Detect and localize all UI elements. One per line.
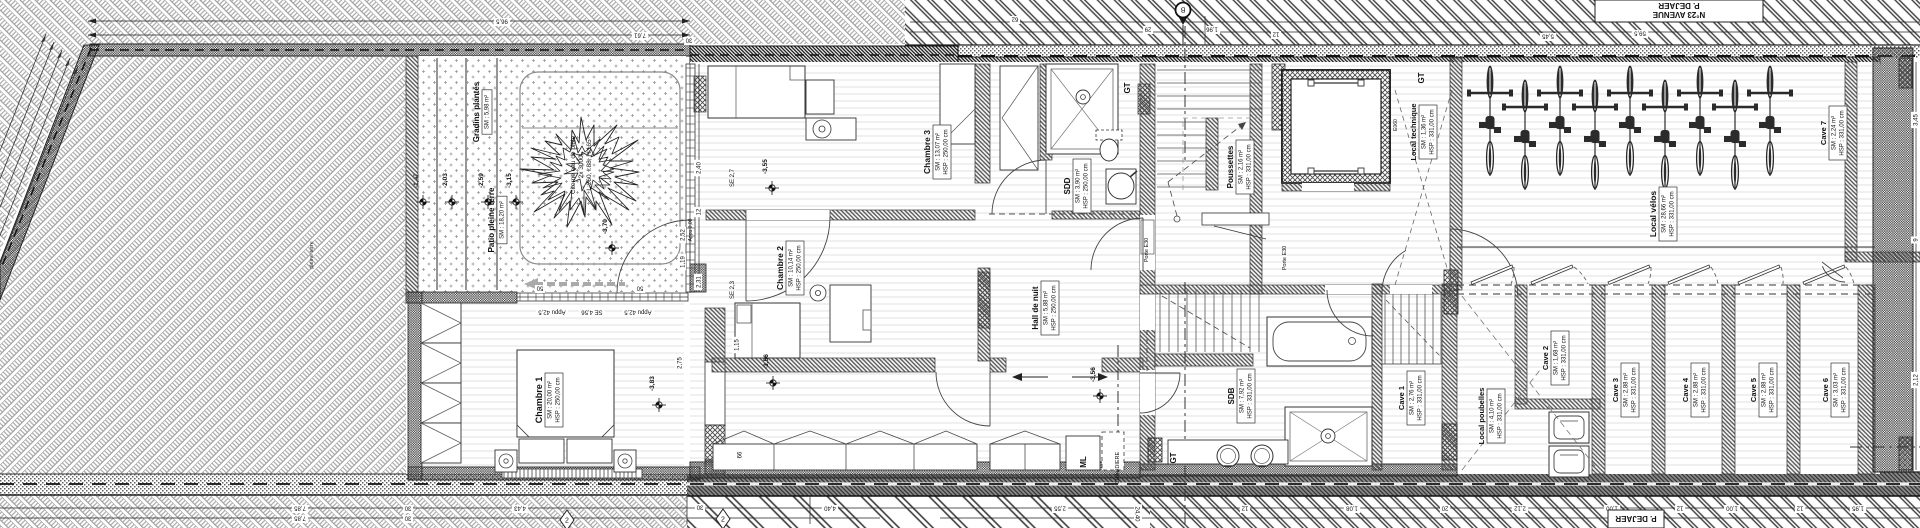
svg-text:Appu 42,5: Appu 42,5 [538,309,566,315]
svg-text:Appu 0,00: Appu 0,00 [688,218,694,241]
svg-text:SM : 3,90 m²: SM : 3,90 m² [1076,169,1082,203]
svg-text:SE 4,56: SE 4,56 [581,309,603,315]
svg-text:Cave 2: Cave 2 [1541,346,1550,370]
svg-text:2,52: 2,52 [681,229,687,241]
svg-text:N°23 AVENUE: N°23 AVENUE [1652,10,1705,19]
svg-text:SM : 4,10 m²: SM : 4,10 m² [1490,399,1496,433]
svg-text:Chambre 3: Chambre 3 [922,130,932,174]
svg-text:-2,03: -2,03 [442,173,449,188]
svg-text:Poussettes: Poussettes [1226,145,1235,188]
svg-text:7,85: 7,85 [294,515,306,521]
svg-text:Gradins plantés: Gradins plantés [472,81,481,142]
svg-text:B: B [1180,6,1185,13]
svg-text:24,40: 24,40 [1134,506,1140,522]
svg-text:62: 62 [1011,16,1018,22]
svg-text:1,96: 1,96 [1206,26,1218,32]
svg-text:-3,56: -3,56 [1090,367,1097,382]
svg-text:Porte E30: Porte E30 [1144,238,1150,262]
svg-text:HSP : 331,00 cm: HSP : 331,00 cm [1842,367,1848,412]
svg-text:12: 12 [1796,505,1803,511]
svg-text:-3,15: -3,15 [506,173,513,188]
svg-text:2: 2 [721,517,725,524]
svg-text:7,61: 7,61 [634,32,646,38]
svg-text:SM : 18,20 m²: SM : 18,20 m² [500,201,506,239]
svg-text:HSP : 331,00 cm: HSP : 331,00 cm [1418,375,1424,420]
svg-text:Local vélos: Local vélos [1648,191,1658,238]
svg-text:-2,59: -2,59 [478,173,485,188]
svg-text:HSP : 331,00 cm: HSP : 331,00 cm [1430,109,1436,154]
svg-text:HSP : 250,00 cm: HSP : 250,00 cm [556,377,562,422]
svg-text:7,85: 7,85 [294,505,306,511]
svg-text:HSP : 250,00 cm: HSP : 250,00 cm [944,129,950,174]
svg-text:SM : 1,36 m²: SM : 1,36 m² [1422,115,1428,149]
svg-text:Local technique: Local technique [1409,103,1418,160]
svg-text:30: 30 [696,504,703,510]
svg-text:SE 2,7: SE 2,7 [730,168,736,187]
svg-text:Hall de nuit: Hall de nuit [1031,286,1040,329]
svg-text:SM : 5,98 m²: SM : 5,98 m² [485,95,491,129]
svg-text:HSP : 250,00 cm: HSP : 250,00 cm [1084,163,1090,208]
svg-text:SM : 10,14 m²: SM : 10,14 m² [789,249,795,287]
svg-text:HSP : 331,00 cm: HSP : 331,00 cm [1702,367,1708,412]
svg-text:20: 20 [1441,505,1448,511]
svg-text:CHAUDIERE: CHAUDIERE [1115,451,1121,484]
svg-text:29: 29 [1144,26,1151,32]
svg-text:SM : 28,66 m²: SM : 28,66 m² [1662,195,1668,233]
svg-text:Cave 5: Cave 5 [1749,378,1758,402]
svg-text:Cave 4: Cave 4 [1681,377,1690,402]
svg-text:SM : 2,76 m²: SM : 2,76 m² [1410,381,1416,415]
svg-text:96,5: 96,5 [496,18,508,24]
svg-text:59,5: 59,5 [1634,30,1646,36]
svg-text:2,75: 2,75 [678,357,684,369]
svg-text:1,00: 1,00 [1726,505,1738,511]
svg-text:HSP : 331,00 cm: HSP : 331,00 cm [1670,191,1676,236]
svg-text:3,45: 3,45 [1914,114,1920,126]
svg-text:-3,56: -3,56 [763,354,770,369]
svg-text:L:260, l:88, H:165: L:260, l:88, H:165 [586,139,593,191]
svg-text:12: 12 [1241,505,1248,511]
svg-text:SM : 2,88 m²: SM : 2,88 m² [1624,373,1630,407]
svg-text:2,12: 2,12 [1514,505,1526,511]
svg-text:30: 30 [404,505,411,511]
svg-text:HSP : 250,00 cm: HSP : 250,00 cm [797,245,803,290]
svg-text:P. DEJAER: P. DEJAER [1615,514,1656,523]
svg-text:-3,70: -3,70 [602,219,609,234]
svg-text:2,12: 2,12 [1914,374,1920,386]
svg-text:HSP : 331,00 cm: HSP : 331,00 cm [1248,373,1254,418]
svg-text:50: 50 [636,285,643,291]
svg-text:4,40: 4,40 [824,505,836,511]
svg-text:30: 30 [404,515,411,521]
svg-text:HSP : 331,00 cm: HSP : 331,00 cm [1498,393,1504,438]
svg-text:2,40: 2,40 [697,162,703,174]
svg-text:Appu 42,5: Appu 42,5 [624,309,652,315]
svg-text:GT: GT [1123,82,1132,93]
svg-text:1,19: 1,19 [681,256,687,268]
svg-text:Cave 7: Cave 7 [1819,121,1828,145]
svg-text:Cave 6: Cave 6 [1821,378,1830,402]
svg-text:Cave 3: Cave 3 [1611,378,1620,402]
svg-text:P. DEJAER: P. DEJAER [1658,1,1699,10]
svg-text:12: 12 [1272,31,1279,37]
svg-text:Cave 1: Cave 1 [1397,386,1406,410]
svg-text:5,45: 5,45 [1542,33,1554,39]
svg-text:SM : 2,16 m²: SM : 2,16 m² [1239,150,1245,184]
svg-text:SE 2,3: SE 2,3 [730,280,736,299]
svg-text:SM : 2,24 m²: SM : 2,24 m² [1832,116,1838,150]
svg-text:1,95: 1,95 [1852,505,1864,511]
svg-text:SM : 13,07 m²: SM : 13,07 m² [936,133,942,171]
svg-text:GT: GT [1169,452,1178,463]
svg-text:Local poubelles: Local poubelles [1477,388,1486,445]
svg-text:12: 12 [697,208,703,215]
svg-text:-3,83: -3,83 [649,376,656,391]
svg-text:GT: GT [1417,72,1426,83]
svg-text:SM : 5,88 m²: SM : 5,88 m² [1044,291,1050,325]
svg-text:1,08: 1,08 [1346,505,1358,511]
svg-text:4,43: 4,43 [514,505,526,511]
svg-text:pleine terre: pleine terre [309,241,315,269]
svg-text:HSP : 331,00 cm: HSP : 331,00 cm [1247,144,1253,189]
svg-text:HSP : 331,00 cm: HSP : 331,00 cm [1632,367,1638,412]
svg-text:30: 30 [685,37,692,43]
svg-text:Citerne eau de pluie: Citerne eau de pluie [570,136,577,195]
svg-text:Porte E30: Porte E30 [1282,246,1288,270]
svg-text:1,15: 1,15 [735,339,741,351]
svg-text:12: 12 [1676,505,1683,511]
svg-text:2: 2 [565,518,569,525]
svg-text:Chambre 1: Chambre 1 [534,377,544,424]
svg-text:SM : 3,03 m²: SM : 3,03 m² [1834,373,1840,407]
svg-text:2,55: 2,55 [1054,505,1066,511]
svg-text:SDB: SDB [1227,387,1236,404]
svg-text:SM : 1,68 m²: SM : 1,68 m² [1554,341,1560,375]
svg-text:SDD: SDD [1063,177,1072,194]
svg-text:HSP : 331,00 cm: HSP : 331,00 cm [1840,110,1846,155]
svg-text:SM : 2,88 m²: SM : 2,88 m² [1694,373,1700,407]
svg-text:HSP : 331,00 cm: HSP : 331,00 cm [1562,335,1568,380]
svg-text:2,31: 2,31 [697,276,703,288]
svg-text:Chambre 2: Chambre 2 [775,246,785,290]
svg-text:2x 3000L: 2x 3000L [578,151,585,178]
svg-text:SM : 7,92 m²: SM : 7,92 m² [1240,379,1246,413]
svg-text:SM : 2,88 m²: SM : 2,88 m² [1762,373,1768,407]
svg-text:66: 66 [738,451,744,458]
svg-text:E060: E060 [1393,119,1399,131]
svg-text:-3,55: -3,55 [762,159,769,174]
svg-text:50: 50 [536,285,543,291]
svg-text:SM : 20,00 m²: SM : 20,00 m² [548,381,554,419]
svg-text:HSP : 250,00 cm: HSP : 250,00 cm [1052,285,1058,330]
svg-text:Patio pleine terre: Patio pleine terre [487,187,496,252]
svg-text:HSP : 331,00 cm: HSP : 331,00 cm [1770,367,1776,412]
svg-text:ML: ML [1079,456,1088,468]
